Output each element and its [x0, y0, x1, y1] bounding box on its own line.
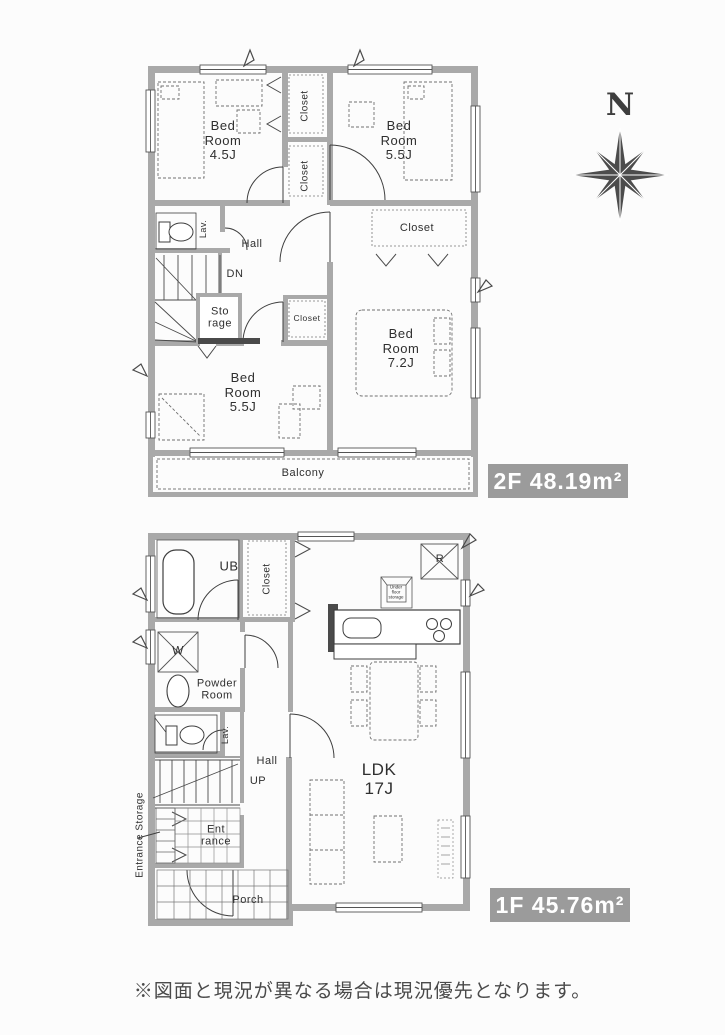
room-label-closet-right-2f: Closet [400, 222, 434, 234]
windows-1f [146, 532, 470, 912]
stairs-1f [153, 757, 240, 808]
disclaimer-text: ※図面と現況が異なる場合は現況優先となります。 [0, 976, 725, 1003]
area-badge-2f: 2F 48.19m² [488, 464, 628, 498]
porch-label-1f: Porch [232, 894, 263, 906]
room-label-closet-mid-2f: Closet [300, 160, 311, 191]
room-label-closet-1f: Closet [262, 563, 273, 594]
room-label-bedroom-55b-2f: Bed Room 5.5J [225, 371, 262, 415]
entrance-storage-label-1f: Entrance Storage [135, 792, 146, 878]
windows-2f [146, 65, 480, 457]
room-label-bedroom-55a-2f: Bed Room 5.5J [381, 119, 418, 163]
outer-walls-2f [148, 66, 478, 457]
toilet-icon-1f [155, 715, 217, 753]
room-label-lav-2f: Lav. [198, 220, 208, 238]
room-label-lav-1f: Lav. [220, 726, 230, 744]
porch-tiles [157, 870, 288, 919]
washer-label-1f: W [172, 644, 184, 657]
room-label-entrance-1f: Ent rance [201, 824, 231, 849]
room-label-hall-1f: Hall [257, 755, 278, 767]
bathtub-icon [157, 540, 239, 618]
powder-sink-icon [167, 675, 189, 707]
stairs-down-label-2f: DN [227, 268, 244, 280]
room-label-ldk-1f: LDK 17J [362, 760, 397, 798]
floorplan-canvas [0, 0, 725, 1035]
room-label-bedroom-72-2f: Bed Room 7.2J [383, 327, 420, 371]
dining-set [351, 662, 436, 740]
room-label-ub-1f: UB [219, 560, 238, 575]
kitchen-counter [328, 604, 460, 659]
room-label-powder-room-1f: Powder Room [197, 678, 237, 703]
room-label-bedroom-45-2f: Bed Room 4.5J [205, 119, 242, 163]
balcony-label-2f: Balcony [282, 467, 325, 479]
stairs-up-label-1f: UP [250, 775, 266, 787]
underfloor-storage-label-1f: Under floor storage [388, 584, 403, 599]
floorplan-page: { "compass": { "north": "N" }, "floor2":… [0, 0, 725, 1035]
compass-north-label: N [606, 87, 634, 123]
room-label-hall-2f: Hall [242, 238, 263, 250]
fridge-label-1f: R [436, 553, 444, 565]
room-label-closet-top-2f: Closet [300, 90, 311, 121]
entrance-storage-shelves [156, 808, 175, 863]
toilet-icon-2f [156, 213, 196, 249]
area-badge-1f: 1F 45.76m² [490, 888, 630, 922]
room-label-closet-small-2f: Closet [293, 314, 320, 324]
note-box [438, 820, 453, 878]
compass-rose-icon [572, 128, 668, 222]
room-label-storage-2f: Sto rage [208, 306, 232, 331]
